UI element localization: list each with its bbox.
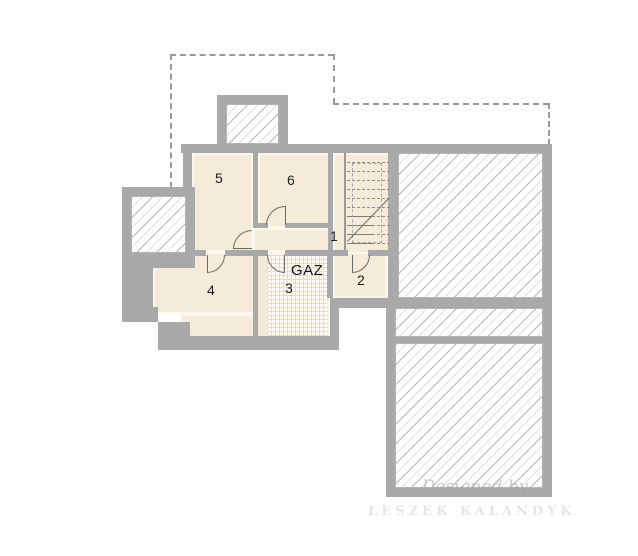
- room-4-floor-lower: [180, 314, 258, 338]
- wall-wing-left: [386, 298, 395, 497]
- watermark-author: LESZEK KALANDYK: [362, 504, 582, 519]
- wall-left-mid: [122, 253, 153, 309]
- wall-room5-room6: [253, 153, 258, 228]
- door-leaf-room-3: [284, 255, 285, 273]
- wall-hall-bottom-4: [285, 250, 348, 256]
- room-2-label: 2: [357, 273, 365, 287]
- wall-right: [543, 144, 552, 497]
- hatched-light-well: [131, 196, 186, 253]
- hatched-strip-right: [395, 308, 543, 337]
- hatched-bumpout-well: [226, 104, 279, 144]
- room-5-label: 5: [215, 171, 223, 185]
- upper-floor-outline-top-right: [333, 103, 549, 105]
- floor-plan: 1 2 3 4 5 6 GAZ Designed by LESZEK KALAN…: [0, 0, 638, 556]
- upper-floor-outline-mid: [333, 54, 335, 104]
- wall-hall-bottom-5: [368, 250, 390, 256]
- wall-hall-bottom-1: [192, 250, 206, 256]
- room-6-label: 6: [287, 173, 295, 187]
- watermark-designed-by: Designed by: [380, 477, 570, 497]
- hatched-area-bottom-right: [395, 343, 543, 488]
- upper-floor-outline-right: [548, 103, 550, 145]
- hatched-area-top-right: [398, 153, 543, 298]
- wall-hall-bottom-2: [225, 250, 253, 256]
- door-leaf-room-5: [233, 248, 252, 249]
- wall-room3-room2: [327, 252, 333, 298]
- door-leaf-room-6: [285, 206, 286, 225]
- wall-room4-room3: [253, 252, 258, 338]
- stair-stringer: [344, 153, 346, 250]
- upper-floor-outline-left: [170, 54, 172, 188]
- upper-floor-outline-top-left: [170, 54, 334, 56]
- door-leaf-room-4: [207, 255, 208, 273]
- hallway-floor: [253, 228, 333, 252]
- gas-room-label: GAZ: [291, 263, 323, 278]
- room-4-label: 4: [207, 283, 215, 297]
- wall-bottom-main: [158, 336, 339, 350]
- stairs: [344, 153, 390, 250]
- room-3-label: 3: [285, 281, 293, 295]
- wall-step-1: [122, 307, 158, 322]
- room-1-label: 1: [330, 229, 338, 243]
- door-leaf-room-2: [352, 255, 353, 273]
- wall-room6-bottom-b: [285, 223, 333, 228]
- wall-wing-strip-top: [395, 298, 543, 308]
